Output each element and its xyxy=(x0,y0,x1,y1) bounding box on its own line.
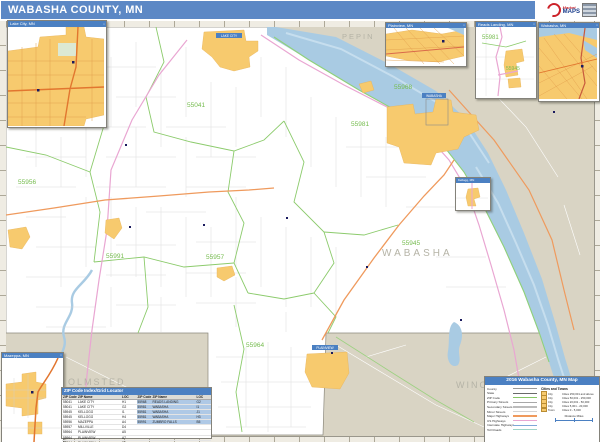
loc-cell: G2 xyxy=(197,400,210,404)
zip-label-55968: 55968 xyxy=(394,84,412,91)
legend-label: Secondary Streets xyxy=(487,405,513,409)
inset-reads-landing: Reads Landing, MN ▫▫ 55981 55945 xyxy=(475,21,537,99)
name-cell: PLAINVIEW xyxy=(78,430,122,434)
legend-label: ZIP Code xyxy=(487,396,513,400)
page-title: WABASHA COUNTY, MN xyxy=(8,4,143,16)
inset-zip-55945: 55945 xyxy=(506,66,520,72)
loc-cell: A4 xyxy=(122,420,135,424)
loc-cell: H3 xyxy=(197,415,210,419)
county-label-wabasha: WABASHA xyxy=(382,248,453,259)
legend-label: Primary Streets xyxy=(487,400,513,404)
inset-plainview: Plainview, MN ▫▫ xyxy=(385,22,467,67)
zip-cell: 55991 xyxy=(137,420,153,424)
zip-cell: 55981 xyxy=(137,415,153,419)
name-cell: LAKE CITY xyxy=(78,405,122,409)
zip-cell: 55957 xyxy=(62,425,78,429)
logo-badge-icon xyxy=(582,3,597,17)
scale-bar-graphic xyxy=(555,418,593,422)
loc-cell: B5 xyxy=(197,420,210,424)
line-swatch xyxy=(513,425,537,426)
zip-cell: 55964 xyxy=(62,436,78,440)
logo-word2: MAPS xyxy=(563,10,580,14)
inset-kellogg: Kellogg, MN xyxy=(455,177,491,211)
inset-window-controls-icon: ▫▫ xyxy=(533,22,535,27)
loc-cell: H4 xyxy=(122,415,135,419)
inset-wabasha-title: Wabasha, MN xyxy=(541,23,566,28)
city-class-row: TownCities 0 - 5,000 xyxy=(541,408,597,412)
inset-lake-city: Lake City, MN ▫▫ xyxy=(7,20,107,128)
legend-layers: County State ZIP Code Primary Streets Se… xyxy=(487,387,539,432)
zip-cell: 55964 xyxy=(62,430,78,434)
city-class-icon-label: Town xyxy=(548,408,562,412)
zip-cell: 55981 xyxy=(137,405,153,409)
legend-cities: Cities and Towns CityCities 250,001 and … xyxy=(539,387,597,432)
loc-cell: H1 xyxy=(122,400,135,404)
legend-label: State xyxy=(487,391,513,395)
zip-code-table: ZIP Code Index/Grid Locator ZIP Code ZIP… xyxy=(61,387,212,439)
name-cell: KELLOGG xyxy=(78,410,122,414)
loc-cell: D4 xyxy=(122,425,135,429)
zip-label-55964: 55964 xyxy=(246,342,264,349)
inset-wabasha-map xyxy=(539,28,597,99)
map-legend: 2016 Wabasha County, MN Map County State… xyxy=(484,376,600,442)
legend-label: US Highways xyxy=(487,419,513,423)
line-swatch xyxy=(513,393,537,394)
scale-bar: Distance Miles xyxy=(555,414,593,423)
loc-cell: I1 xyxy=(122,410,135,414)
inset-plainview-title: Plainview, MN xyxy=(388,23,413,28)
name-cell: ZUMBRO FALLS xyxy=(153,420,197,424)
loc-cell: A5 xyxy=(122,430,135,434)
name-cell: MAZEPPA xyxy=(78,420,122,424)
name-cell: WABASHA xyxy=(153,415,197,419)
inset-window-controls-icon: ▫▫ xyxy=(463,23,465,28)
county-label-pepin: PEPIN xyxy=(342,32,375,41)
city-class-range: Cities 0 - 5,000 xyxy=(562,408,581,412)
zip-cell: 55956 xyxy=(62,420,78,424)
col-zip: ZIP Code xyxy=(137,395,153,399)
zip-label-55041: 55041 xyxy=(187,102,205,109)
col-name: ZIP Name xyxy=(78,395,122,399)
wall-map-page: WABASHA COUNTY, MN Market MAPS xyxy=(0,0,600,442)
inset-lake-city-title: Lake City, MN xyxy=(10,21,35,27)
inset-window-controls-icon: ▫▫ xyxy=(60,353,62,358)
zip-cell: 55981 xyxy=(137,410,153,414)
city-swatch-icon xyxy=(541,408,547,413)
marketmaps-logo: Market MAPS xyxy=(537,1,598,19)
loc-cell: I1 xyxy=(197,405,210,409)
zip-cell: 55945 xyxy=(62,415,78,419)
line-swatch xyxy=(513,406,537,407)
inset-wabasha: Wabasha, MN ▫▫ xyxy=(538,22,600,102)
loc-cell: A7 xyxy=(122,436,135,440)
zip-label-55956: 55956 xyxy=(18,179,36,186)
zip-cell: 55968 xyxy=(137,400,153,404)
name-cell: WABASHA xyxy=(153,410,197,414)
col-loc: LOC xyxy=(122,395,135,399)
name-cell: KELLOGG xyxy=(78,415,122,419)
inset-reads-landing-title: Reads Landing, MN xyxy=(478,22,513,27)
county-label-olmsted: OLMSTED xyxy=(68,377,126,387)
legend-title: 2016 Wabasha County, MN Map xyxy=(485,377,599,385)
zip-cell: 55041 xyxy=(62,400,78,404)
col-zip: ZIP Code xyxy=(62,395,78,399)
cities-towns-header: Cities and Towns xyxy=(541,387,597,391)
city-box-plainview: PLAINVIEW xyxy=(316,346,333,350)
col-name: ZIP Name xyxy=(153,395,197,399)
line-swatch xyxy=(513,402,537,403)
inset-window-controls-icon: ▫▫ xyxy=(596,23,598,28)
inset-mazeppa-title: Mazeppa, MN xyxy=(4,353,29,358)
city-box-wabasha: WABASHA xyxy=(426,94,443,98)
scale-label: Distance Miles xyxy=(555,414,593,418)
inset-kellogg-map xyxy=(456,183,488,209)
col-loc: LOC xyxy=(197,395,210,399)
inset-lake-city-map xyxy=(8,27,104,126)
inset-mazeppa: Mazeppa, MN ▫▫ xyxy=(1,352,64,442)
inset-zip-55981: 55981 xyxy=(482,35,499,41)
zip-table-left: ZIP Code ZIP Name LOC 55041LAKE CITYH1 5… xyxy=(62,395,137,442)
line-swatch xyxy=(513,411,537,412)
legend-label: County xyxy=(487,387,513,391)
line-swatch xyxy=(513,415,537,416)
legend-row: Toll Roads xyxy=(487,427,539,432)
name-cell: PLAINVIEW xyxy=(78,436,122,440)
logo-swirl-icon xyxy=(544,0,563,19)
zip-cell: 55041 xyxy=(62,405,78,409)
name-cell: LAKE CITY xyxy=(78,400,122,404)
zip-label-55991: 55991 xyxy=(106,253,124,260)
loc-cell: J1 xyxy=(197,410,210,414)
zip-table-right: ZIP Code ZIP Name LOC 55968READS LANDING… xyxy=(137,395,212,442)
inset-window-controls-icon: ▫▫ xyxy=(103,21,105,27)
inset-plainview-map xyxy=(386,28,464,64)
zip-label-55957: 55957 xyxy=(206,254,224,261)
line-swatch xyxy=(513,429,537,430)
legend-label: Major Highways xyxy=(487,414,513,418)
name-cell: WABASHA xyxy=(153,405,197,409)
title-banner: WABASHA COUNTY, MN xyxy=(1,1,535,19)
inset-reads-landing-map: 55981 55945 xyxy=(476,27,534,96)
legend-label: Minor Streets xyxy=(487,410,513,414)
zip-cell: 55945 xyxy=(62,410,78,414)
city-plainview xyxy=(305,352,349,389)
legend-label: Toll Roads xyxy=(487,428,513,432)
inset-kellogg-title: Kellogg, MN xyxy=(458,178,474,183)
legend-label: Interstate Highways xyxy=(487,423,513,427)
logo-words: Market MAPS xyxy=(563,6,580,14)
line-swatch xyxy=(513,420,537,421)
loc-cell: G2 xyxy=(122,405,135,409)
zip-label-55981: 55981 xyxy=(351,121,369,128)
line-swatch xyxy=(513,388,537,389)
inset-mazeppa-map xyxy=(2,358,61,442)
name-cell: READS LANDING xyxy=(153,400,197,404)
line-swatch xyxy=(513,397,537,398)
zip-label-55945: 55945 xyxy=(402,240,420,247)
name-cell: MILLVILLE xyxy=(78,425,122,429)
city-box-lake-city: LAKE CITY xyxy=(221,34,238,38)
